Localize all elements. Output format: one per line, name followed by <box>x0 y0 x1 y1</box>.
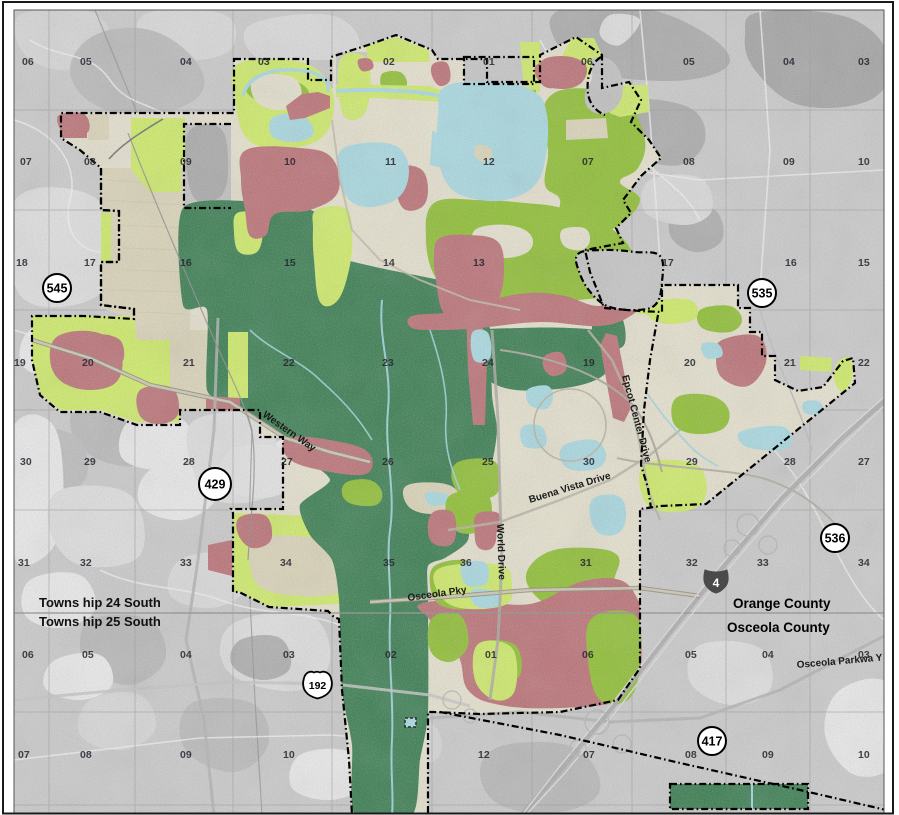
svg-text:05: 05 <box>80 56 92 68</box>
svg-text:Towns hip 25 South: Towns hip 25 South <box>39 614 161 629</box>
svg-text:36: 36 <box>460 557 472 569</box>
svg-text:06: 06 <box>581 56 593 68</box>
svg-text:09: 09 <box>762 749 774 761</box>
svg-text:07: 07 <box>583 749 595 761</box>
svg-text:02: 02 <box>383 56 395 68</box>
svg-text:05: 05 <box>82 649 94 661</box>
svg-text:33: 33 <box>757 557 769 569</box>
svg-text:05: 05 <box>683 56 695 68</box>
svg-text:16: 16 <box>785 257 797 269</box>
svg-text:09: 09 <box>180 749 192 761</box>
svg-text:03: 03 <box>258 56 270 68</box>
svg-text:07: 07 <box>20 156 32 168</box>
svg-text:34: 34 <box>858 557 870 569</box>
svg-text:28: 28 <box>183 456 195 468</box>
svg-text:12: 12 <box>483 156 495 168</box>
svg-text:18: 18 <box>16 257 28 269</box>
svg-text:01: 01 <box>483 56 495 68</box>
svg-text:28: 28 <box>784 456 796 468</box>
svg-text:03: 03 <box>858 56 870 68</box>
svg-text:11: 11 <box>385 156 396 168</box>
svg-text:32: 32 <box>686 557 698 569</box>
svg-text:429: 429 <box>205 478 226 492</box>
svg-text:535: 535 <box>752 287 773 301</box>
svg-text:04: 04 <box>180 649 192 661</box>
svg-text:06: 06 <box>22 649 34 661</box>
svg-text:31: 31 <box>580 557 592 569</box>
svg-text:23: 23 <box>382 357 394 369</box>
svg-text:Osceola County: Osceola County <box>727 620 830 635</box>
svg-text:22: 22 <box>858 357 870 369</box>
svg-text:21: 21 <box>784 357 796 369</box>
svg-text:19: 19 <box>583 357 595 369</box>
svg-text:08: 08 <box>685 749 697 761</box>
svg-text:10: 10 <box>283 749 295 761</box>
svg-text:20: 20 <box>684 357 696 369</box>
svg-text:10: 10 <box>858 749 870 761</box>
svg-text:27: 27 <box>858 456 870 468</box>
svg-text:08: 08 <box>84 156 96 168</box>
svg-text:17: 17 <box>662 257 674 269</box>
svg-text:08: 08 <box>80 749 92 761</box>
svg-text:04: 04 <box>762 649 774 661</box>
svg-text:34: 34 <box>280 557 292 569</box>
svg-text:4: 4 <box>713 576 720 590</box>
svg-text:25: 25 <box>482 456 494 468</box>
svg-text:02: 02 <box>385 649 397 661</box>
svg-text:20: 20 <box>82 357 94 369</box>
svg-text:08: 08 <box>683 156 695 168</box>
svg-text:536: 536 <box>825 532 846 546</box>
svg-text:10: 10 <box>858 156 870 168</box>
svg-text:Orange County: Orange County <box>733 596 831 611</box>
svg-text:33: 33 <box>180 557 192 569</box>
svg-text:192: 192 <box>309 680 327 692</box>
svg-text:31: 31 <box>18 557 30 569</box>
svg-text:30: 30 <box>583 456 595 468</box>
svg-text:07: 07 <box>18 749 30 761</box>
svg-text:27: 27 <box>281 456 293 468</box>
svg-text:22: 22 <box>283 357 295 369</box>
svg-text:30: 30 <box>20 456 32 468</box>
svg-text:World Drive: World Drive <box>494 524 507 581</box>
svg-text:10: 10 <box>284 156 296 168</box>
svg-text:12: 12 <box>478 749 490 761</box>
svg-text:29: 29 <box>686 456 698 468</box>
svg-text:03: 03 <box>283 649 295 661</box>
svg-text:29: 29 <box>84 456 96 468</box>
svg-text:09: 09 <box>180 156 192 168</box>
svg-text:21: 21 <box>183 357 195 369</box>
svg-text:32: 32 <box>80 557 92 569</box>
svg-text:35: 35 <box>383 557 395 569</box>
svg-text:13: 13 <box>473 257 485 269</box>
svg-text:01: 01 <box>485 649 497 661</box>
svg-text:04: 04 <box>783 56 795 68</box>
svg-text:16: 16 <box>180 257 192 269</box>
svg-text:06: 06 <box>22 56 34 68</box>
svg-text:24: 24 <box>482 357 494 369</box>
svg-text:09: 09 <box>783 156 795 168</box>
svg-text:14: 14 <box>383 257 395 269</box>
svg-text:07: 07 <box>582 156 594 168</box>
svg-text:Towns hip 24 South: Towns hip 24 South <box>39 595 161 610</box>
svg-text:05: 05 <box>685 649 697 661</box>
svg-text:17: 17 <box>84 257 96 269</box>
svg-text:19: 19 <box>14 357 26 369</box>
svg-text:545: 545 <box>47 282 68 296</box>
svg-text:06: 06 <box>582 649 594 661</box>
svg-text:15: 15 <box>284 257 296 269</box>
svg-text:26: 26 <box>382 456 394 468</box>
svg-text:04: 04 <box>180 56 192 68</box>
svg-text:15: 15 <box>858 257 870 269</box>
svg-text:417: 417 <box>702 735 723 749</box>
